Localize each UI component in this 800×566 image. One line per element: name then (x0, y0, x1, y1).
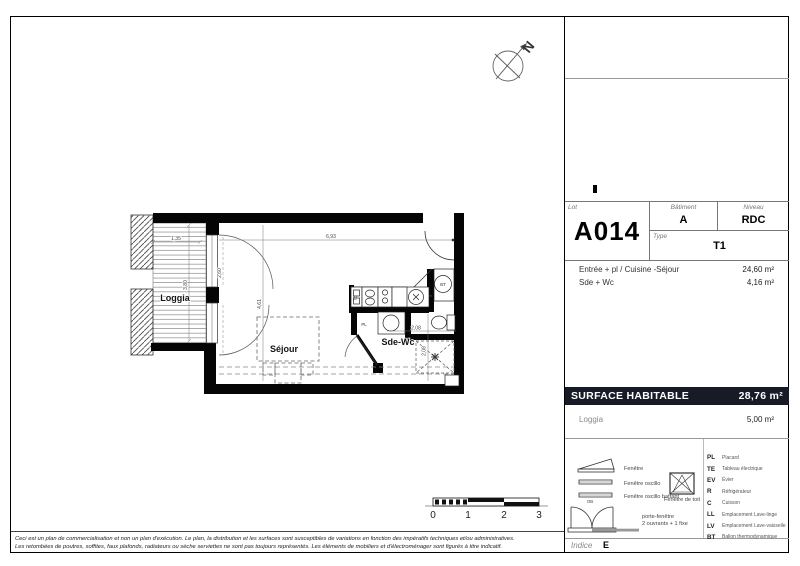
window-symbol (578, 459, 614, 472)
legend-section: Fenêtre Fenêtre oscillo OB Fenêtre oscil… (565, 439, 789, 539)
drawing-page: 1,35 3,80 6,93 4,61 2,08 2,08 2,60 Loggi… (0, 0, 800, 566)
abbrev-code: R (707, 488, 722, 495)
abbrev-row: RRéfrigérateur (707, 486, 787, 497)
dim-sdewc-height: 2,08 (422, 346, 428, 356)
lot-title-block: Lot A014 Bâtiment A Niveau RDC Type T1 (565, 201, 789, 261)
abbrev-row: PLPlacard (707, 452, 787, 463)
dim-loggia-width: 1,35 (171, 236, 181, 242)
scale-label-3: 3 (536, 510, 542, 521)
lot-number: A014 (565, 216, 649, 247)
abbrev-row: TETableau électrique (707, 463, 787, 474)
abbrev-code: LL (707, 511, 722, 518)
type-caption: Type (653, 233, 667, 240)
loggia-deck (131, 215, 206, 355)
shower-drain-icon (431, 353, 439, 361)
disclaimer-box: Ceci est un plan de commercialisation et… (11, 531, 564, 552)
abbrev-code: PL (707, 454, 722, 461)
porte-fenetre-label-2: 2 ouvrants + 1 fixe (642, 521, 688, 527)
area-row: Sde + Wc 4,16 m² (565, 276, 789, 289)
lot-cell: Lot A014 (565, 202, 650, 260)
niveau-caption: Niveau (718, 204, 789, 211)
abbrev-code: EV (707, 477, 722, 484)
scale-label-0: 0 (430, 510, 436, 521)
room-label-sejour: Séjour (270, 344, 299, 354)
kitchen-fixtures (351, 269, 454, 307)
compass-north-letter: N (519, 38, 538, 56)
dim-sdewc-width: 2,08 (411, 326, 421, 332)
fixture-label-bt: BT (440, 282, 446, 287)
loggia-label: Loggia (579, 415, 603, 424)
abbrev-label: Emplacement Lave-vaisselle (722, 523, 786, 529)
niveau-cell: Niveau RDC (718, 202, 789, 231)
fixture-label-te: TE (353, 295, 358, 301)
dim-main-width: 6,93 (326, 234, 336, 240)
area-row: Entrée + pl / Cuisine -Séjour 24,60 m² (565, 263, 789, 276)
fixture-label-pl: PL (361, 322, 367, 327)
panel-divider-1 (565, 78, 789, 79)
area-label: Entrée + pl / Cuisine -Séjour (579, 265, 679, 274)
porte-fenetre-label-1: porte-fenêtre (642, 514, 674, 520)
drawing-sheet: 1,35 3,80 6,93 4,61 2,08 2,08 2,60 Loggi… (10, 16, 789, 553)
abbrev-label: Évier (722, 477, 733, 483)
scale-bar: 0 1 2 3 (425, 498, 548, 521)
indice-row: Indice E (565, 539, 789, 552)
disclaimer-line-1: Ceci est un plan de commercialisation et… (15, 535, 560, 543)
abbrev-label: Emplacement Lave-linge (722, 512, 777, 518)
lot-caption: Lot (568, 204, 577, 211)
abbrev-label: Réfrigérateur (722, 489, 751, 495)
abbreviation-list: PLPlacard TETableau électrique EVÉvier R… (707, 452, 787, 543)
indice-value: E (603, 540, 609, 550)
registration-mark (593, 185, 597, 193)
window-oscillo-symbol (579, 480, 612, 484)
legend-window-label: Fenêtre (624, 466, 643, 472)
batiment-caption: Bâtiment (650, 204, 717, 211)
legend-oscillo-label: Fenêtre oscillo (624, 481, 660, 487)
indice-label: Indice (571, 541, 592, 550)
dim-window-width: 2,60 (217, 268, 223, 278)
abbrev-row: CCuisson (707, 498, 787, 509)
scale-label-2: 2 (501, 510, 507, 521)
floor-plan-svg: 1,35 3,80 6,93 4,61 2,08 2,08 2,60 Loggi… (11, 17, 564, 552)
area-value: 24,60 m² (742, 265, 774, 274)
type-value: T1 (650, 240, 789, 252)
abbrev-label: Placard (722, 455, 739, 461)
area-label: Sde + Wc (579, 278, 614, 287)
batiment-value: A (650, 214, 717, 226)
ob-tag: OB (587, 499, 593, 504)
type-cell: Type T1 (650, 231, 789, 260)
disclaimer-line-2: Les retombées de poutres, soffites, faux… (15, 543, 560, 551)
surface-habitable-bar: SURFACE HABITABLE 28,76 m² (565, 387, 789, 405)
abbrev-code: LV (707, 523, 722, 530)
dim-main-height: 4,61 (257, 299, 263, 309)
loggia-area-row: Loggia 5,00 m² (565, 405, 789, 439)
room-label-loggia: Loggia (160, 293, 190, 303)
roof-window-symbol (670, 473, 694, 494)
porte-fenetre-symbol (568, 507, 639, 532)
abbrev-row: LLEmplacement Lave-linge (707, 509, 787, 520)
loggia-value: 5,00 m² (747, 415, 774, 424)
room-label-sdewc: Sde-Wc (381, 337, 414, 347)
surface-value: 28,76 m² (739, 390, 783, 402)
abbrev-code: C (707, 500, 722, 507)
abbrev-row: EVÉvier (707, 475, 787, 486)
abbrev-label: Cuisson (722, 500, 740, 506)
abbrev-label: Tableau électrique (722, 466, 763, 472)
window-oscillo-battant-symbol (579, 493, 612, 497)
abbrev-row: LVEmplacement Lave-vaisselle (707, 520, 787, 531)
window-notch (445, 375, 459, 386)
batiment-cell: Bâtiment A (650, 202, 718, 231)
roof-window-label: Fenêtre de toit (664, 497, 701, 503)
scale-label-1: 1 (465, 510, 471, 521)
abbrev-code: TE (707, 466, 722, 473)
areas-table: Entrée + pl / Cuisine -Séjour 24,60 m² S… (565, 263, 789, 289)
niveau-value: RDC (718, 214, 789, 226)
dim-loggia-height: 3,80 (183, 280, 189, 290)
area-value: 4,16 m² (747, 278, 774, 287)
surface-label: SURFACE HABITABLE (571, 390, 689, 402)
title-panel: Lot A014 Bâtiment A Niveau RDC Type T1 E… (564, 17, 789, 552)
